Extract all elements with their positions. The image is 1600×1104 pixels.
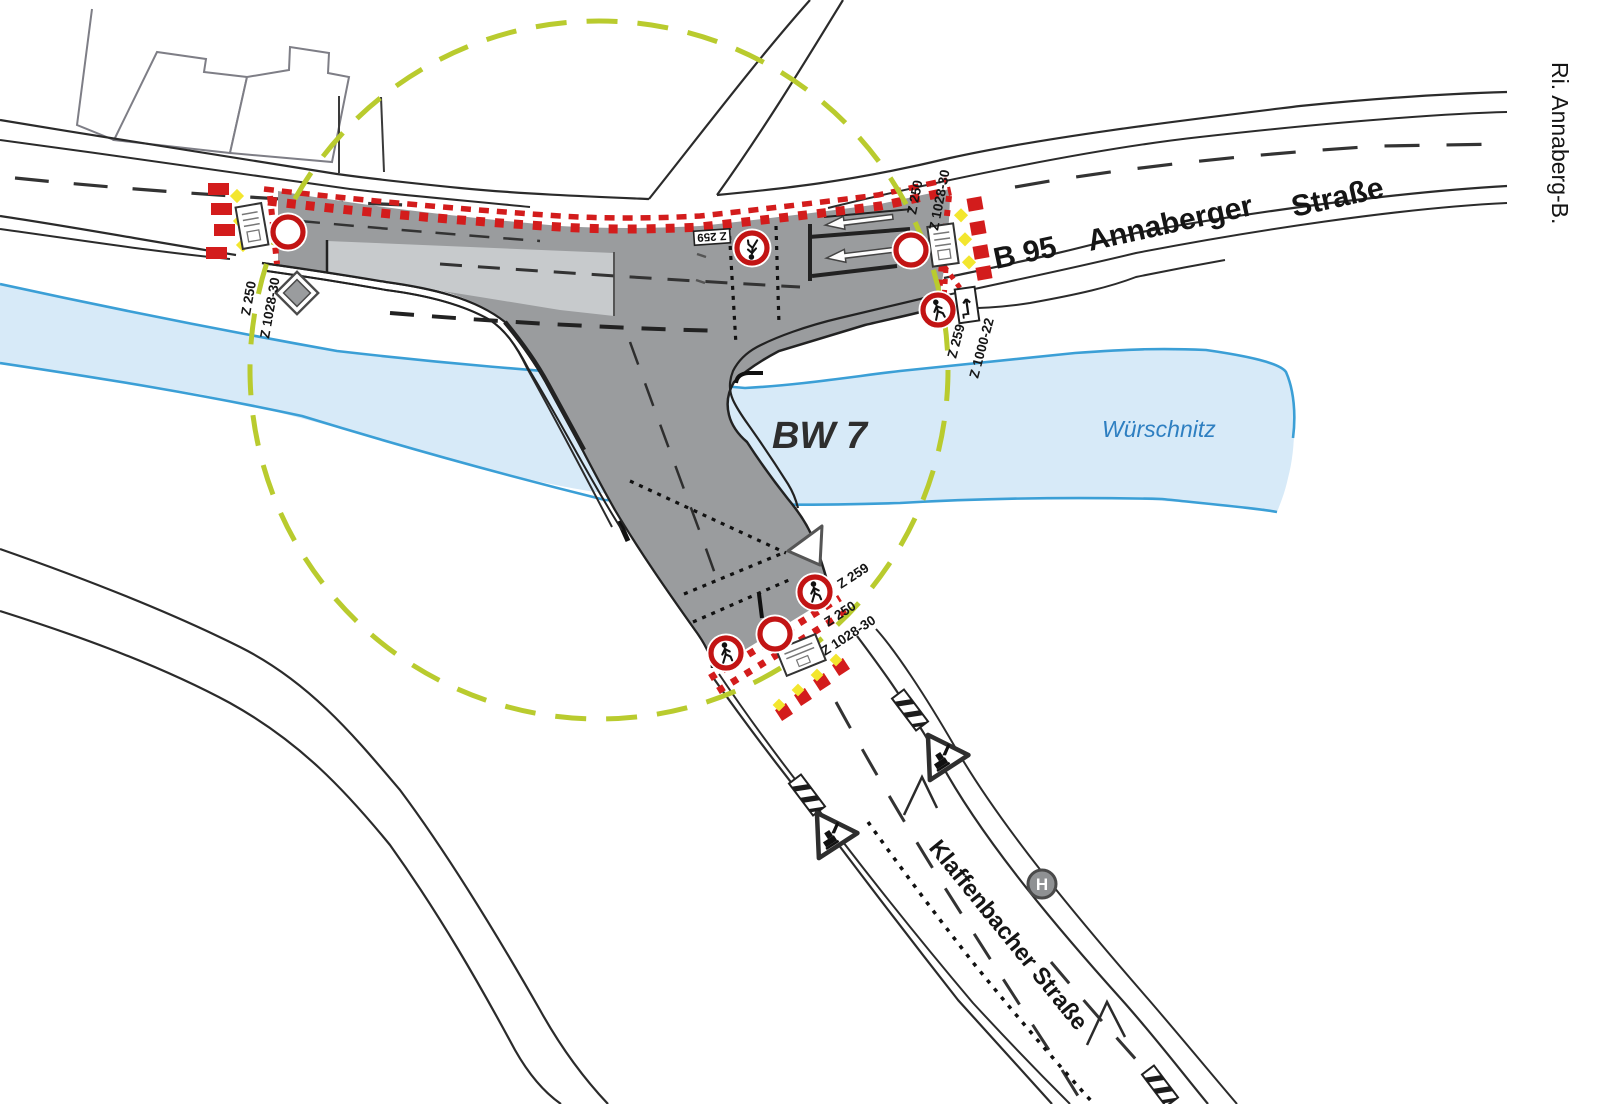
svg-text:Würschnitz: Würschnitz — [1102, 416, 1216, 442]
svg-text:Ri. Annaberg-B.: Ri. Annaberg-B. — [1547, 62, 1573, 224]
svg-text:Z 259: Z 259 — [697, 229, 727, 243]
svg-text:H: H — [1036, 875, 1048, 894]
svg-text:BW 7: BW 7 — [772, 415, 869, 457]
